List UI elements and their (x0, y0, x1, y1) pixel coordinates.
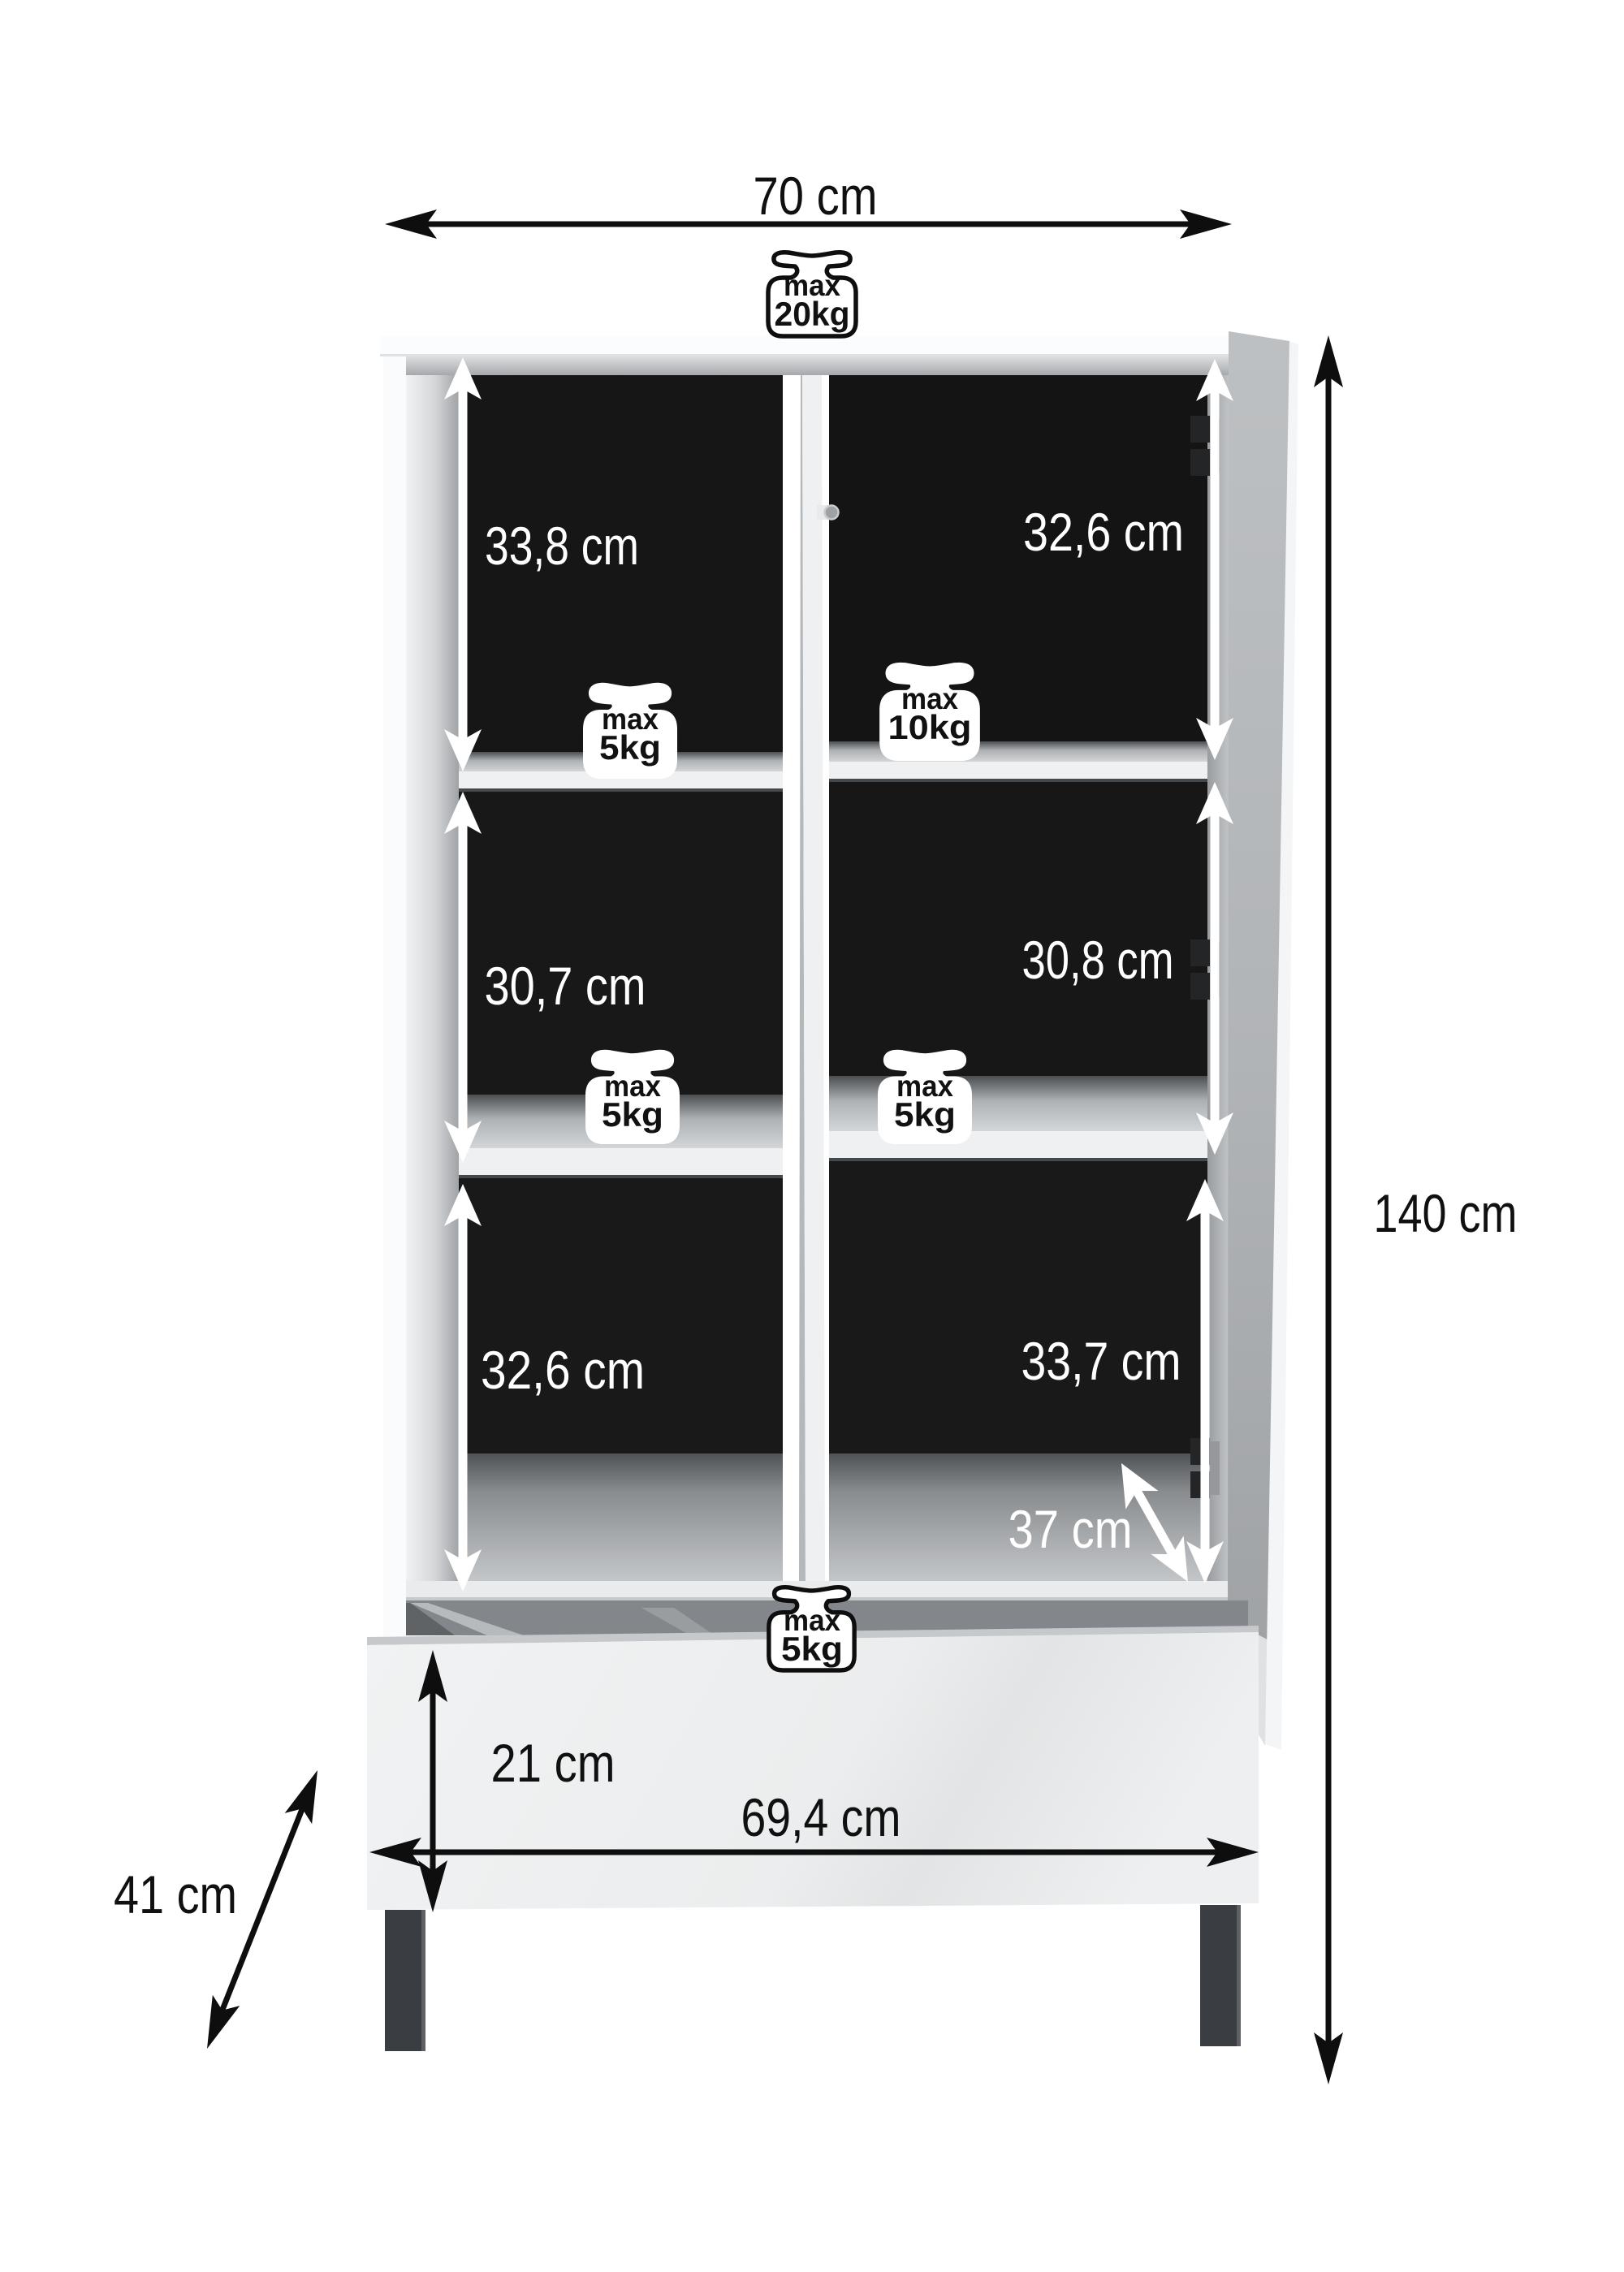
svg-text:10kg: 10kg (888, 708, 972, 746)
svg-text:37 cm: 37 cm (1009, 1499, 1133, 1559)
svg-text:70 cm: 70 cm (754, 166, 878, 226)
svg-text:69,4 cm: 69,4 cm (741, 1787, 901, 1847)
svg-text:20kg: 20kg (775, 295, 850, 333)
svg-text:33,8 cm: 33,8 cm (485, 516, 639, 576)
svg-text:41 cm: 41 cm (114, 1864, 237, 1924)
svg-text:5kg: 5kg (894, 1095, 956, 1134)
svg-text:32,6 cm: 32,6 cm (1023, 502, 1184, 562)
svg-text:32,6 cm: 32,6 cm (481, 1340, 645, 1400)
svg-text:5kg: 5kg (781, 1630, 843, 1668)
svg-text:30,7 cm: 30,7 cm (485, 956, 646, 1016)
svg-text:33,7 cm: 33,7 cm (1021, 1331, 1181, 1391)
svg-text:21 cm: 21 cm (491, 1733, 615, 1793)
svg-text:30,8 cm: 30,8 cm (1022, 930, 1174, 990)
svg-text:5kg: 5kg (602, 1095, 663, 1134)
svg-text:140 cm: 140 cm (1374, 1183, 1518, 1243)
svg-text:5kg: 5kg (599, 728, 661, 767)
